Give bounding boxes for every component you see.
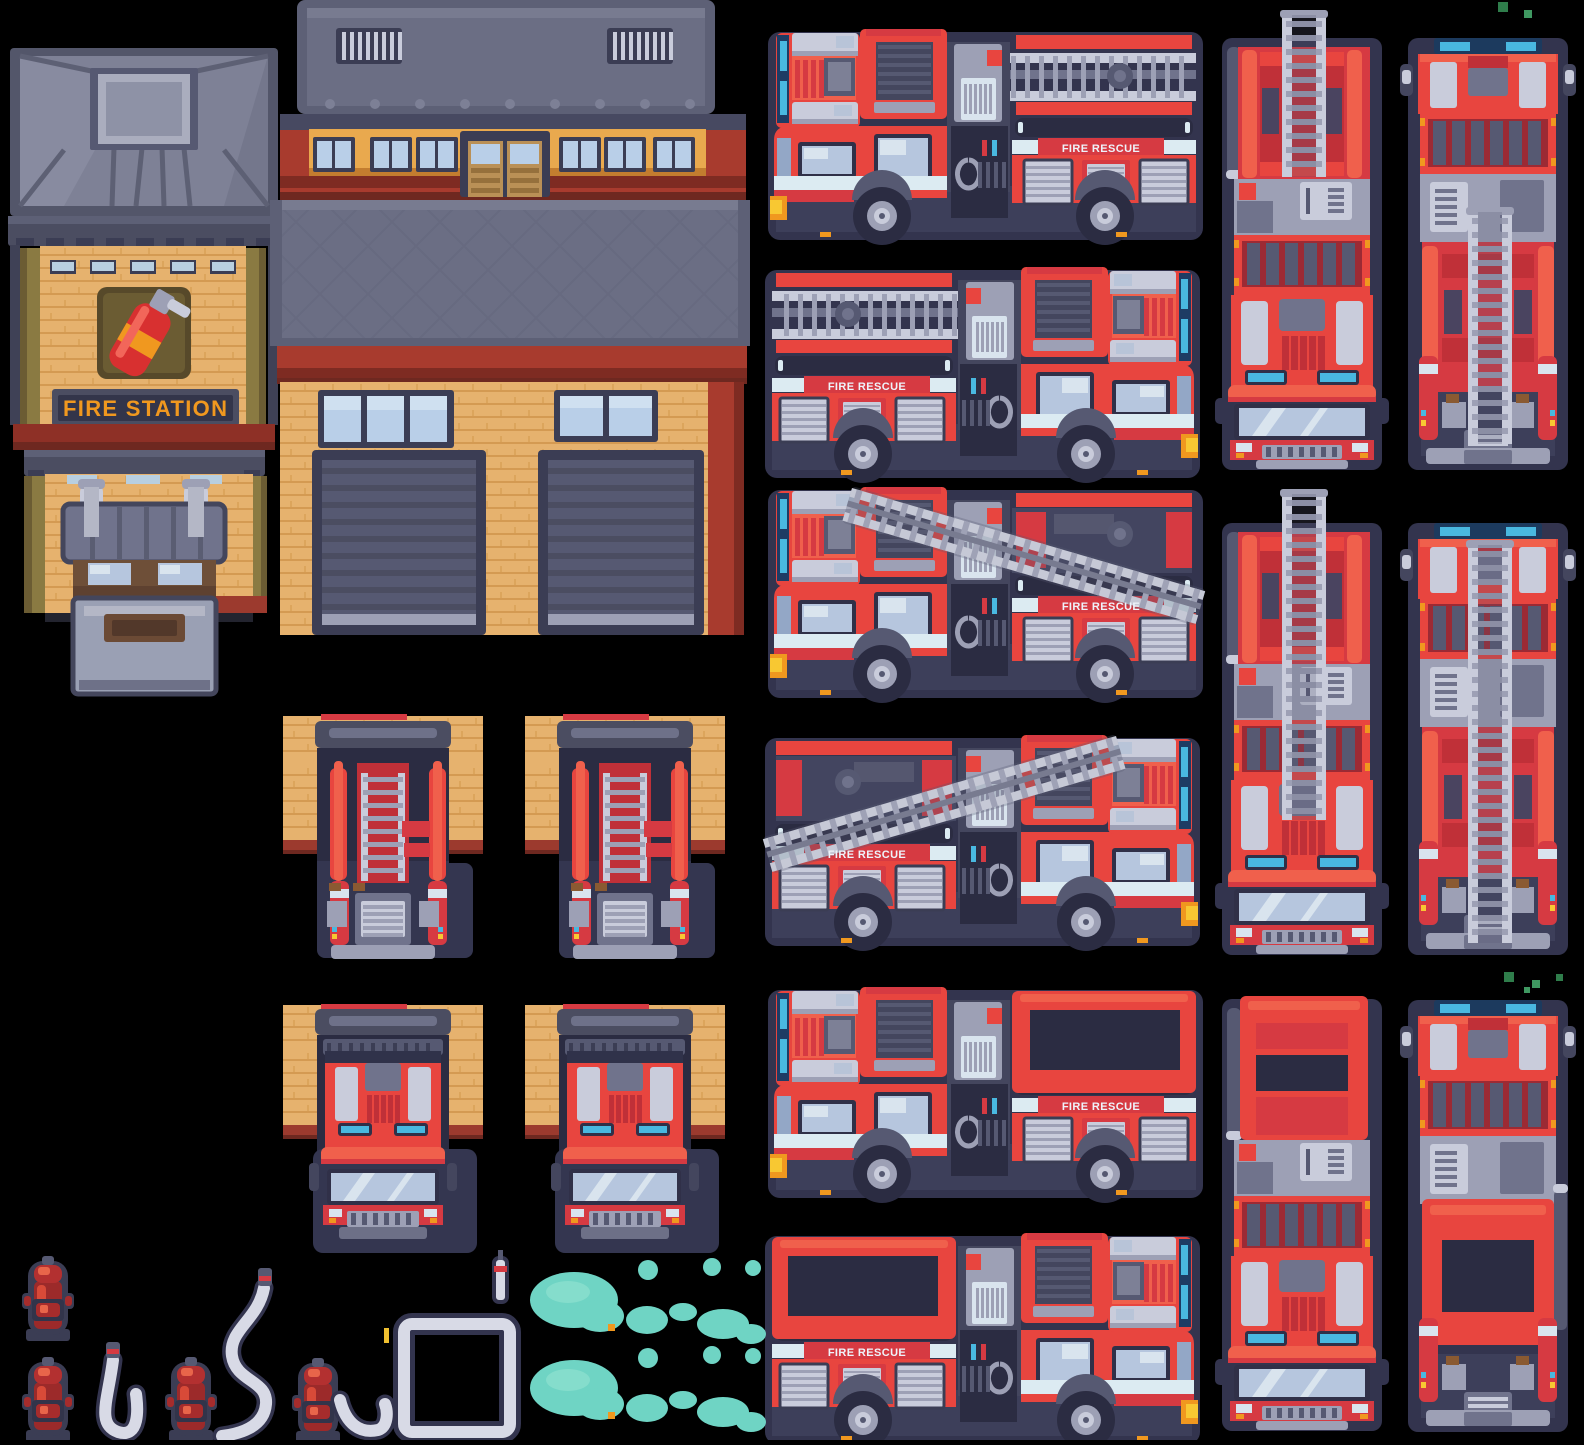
svg-text:FIRE RESCUE: FIRE RESCUE bbox=[1062, 1101, 1140, 1113]
svg-text:FIRE RESCUE: FIRE RESCUE bbox=[828, 849, 906, 861]
svg-text:FIRE RESCUE: FIRE RESCUE bbox=[1062, 143, 1140, 155]
svg-text:FIRE STATION: FIRE STATION bbox=[63, 396, 227, 421]
svg-text:FIRE RESCUE: FIRE RESCUE bbox=[1062, 601, 1140, 613]
svg-text:FIRE RESCUE: FIRE RESCUE bbox=[828, 1347, 906, 1359]
svg-text:FIRE RESCUE: FIRE RESCUE bbox=[828, 381, 906, 393]
